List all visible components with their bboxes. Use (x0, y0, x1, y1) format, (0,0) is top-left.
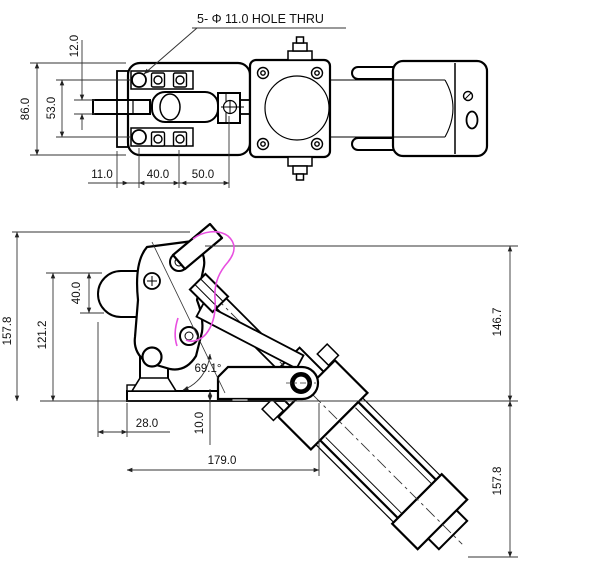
dim-12: 12.0 (69, 35, 81, 57)
drawing-canvas: 5- Φ 11.0 HOLE THRU 86.0 53.0 12.0 11.0 … (0, 0, 600, 577)
clamp-bar (93, 100, 150, 114)
mounting-hole-bottom (132, 130, 146, 144)
dim-40-front: 40.0 (71, 282, 83, 304)
dim-121: 121.2 (37, 321, 49, 350)
mounting-hole-top (132, 73, 146, 87)
dim-86: 86.0 (20, 98, 32, 120)
dim-146: 146.7 (492, 308, 504, 337)
hole-note: 5- Φ 11.0 HOLE THRU (197, 12, 324, 26)
clamp-drawing-svg: 5- Φ 11.0 HOLE THRU 86.0 53.0 12.0 11.0 … (0, 0, 600, 577)
dim-157-right: 157.8 (492, 467, 504, 496)
dim-11: 11.0 (91, 169, 113, 181)
dim-28: 28.0 (136, 418, 158, 430)
dim-157-left: 157.8 (2, 317, 14, 346)
dim-50: 50.0 (192, 169, 214, 181)
cylinder-tube (393, 61, 487, 156)
dim-40-top: 40.0 (147, 169, 169, 181)
dim-179: 179.0 (208, 455, 237, 467)
spindle-boss (98, 271, 140, 317)
port-hole (467, 112, 478, 129)
column-foot (132, 378, 176, 391)
dim-angle: 69.1° (195, 363, 222, 375)
dim-10: 10.0 (194, 412, 206, 434)
hub-face (160, 94, 180, 120)
dim-53: 53.0 (46, 97, 58, 119)
